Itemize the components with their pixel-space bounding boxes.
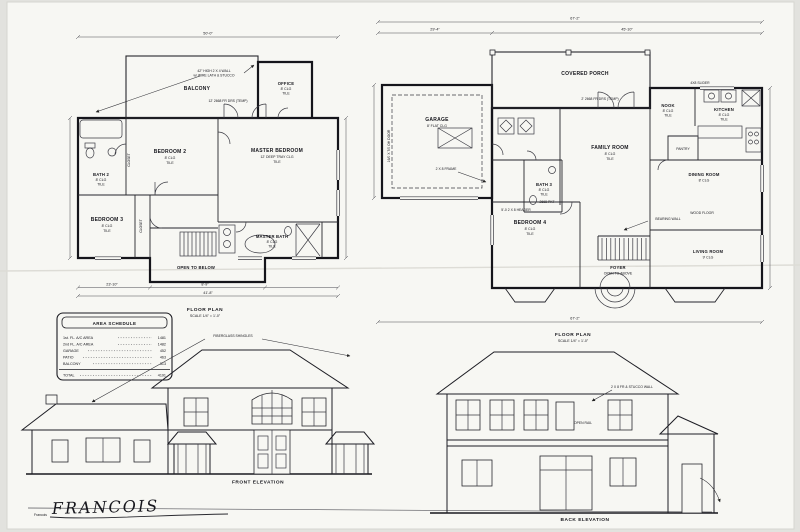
pocket-door-note: 2668 PKT: [539, 200, 554, 204]
bath2-clg: 8' CLG: [96, 178, 107, 182]
room-label-balcony: BALCONY: [184, 86, 211, 92]
room-label-covered-porch: COVERED PORCH: [561, 71, 609, 77]
dim-left-top: 50'-0": [203, 32, 213, 36]
closet-label-1: CLOSET: [139, 219, 143, 233]
master-bath-floor: TILE: [268, 245, 276, 249]
garage-clg: 8' FLAT CLG: [427, 124, 447, 128]
room-label-master-bedroom: MASTER BEDROOM: [251, 148, 303, 154]
wood-floor-note: WOOD FLOOR: [690, 211, 714, 215]
blueprint-scan: BALCONY 42" HIGH 2 X 4 WALL w/ WIRE LATH…: [0, 0, 800, 532]
total-label: TOTAL: [63, 374, 75, 378]
room-label-bedroom2: BEDROOM 2: [154, 149, 187, 155]
balcony-door-note: 12' 2668 FR DRS (TEMP): [208, 99, 247, 103]
room-label-foyer: FOYER: [610, 265, 625, 270]
header-note: 5'-0 2 X 8 HEADER: [501, 208, 531, 212]
row-label: BALCONY: [63, 362, 81, 366]
bedroom4-floor: TILE: [526, 232, 534, 236]
row-label: 2nd FL. A/C AREA: [63, 343, 94, 347]
row-value: 452: [160, 349, 166, 353]
bath3-floor: TILE: [540, 193, 548, 197]
balcony-wall-note-2: w/ WIRE LATH & STUCCO: [193, 74, 234, 78]
row-value: 463: [160, 356, 166, 360]
signature-print: Francois: [34, 513, 47, 517]
bath3-clg: 8' CLG: [539, 188, 550, 192]
first-floor-caption: FLOOR PLAN: [555, 332, 591, 338]
family-room-floor: TILE: [606, 157, 614, 161]
roof-material-note: FIBERGLASS SHINGLES: [213, 334, 253, 338]
open-rail-note: OPEN RAIL: [574, 421, 592, 425]
bath2-floor: TILE: [97, 183, 105, 187]
dim-right-top-total: 67'-2": [570, 17, 580, 21]
kitchen-clg: 8' CLG: [719, 113, 730, 117]
master-bedroom-floor: TILE: [273, 160, 281, 164]
nook-floor: TILE: [664, 114, 672, 118]
room-label-kitchen: KITCHEN: [714, 107, 734, 112]
garage-door-note: 16/0 X 7/0 OH DOOR: [387, 129, 391, 162]
dim-right-top-right: 45'-10": [621, 28, 633, 32]
stucco-wall-note: 2 X 8 FR & STUCCO WALL: [611, 385, 653, 389]
master-bedroom-clg: 12' DEEP TRAY CLG: [260, 155, 293, 159]
bedroom3-clg: 8' CLG: [102, 224, 113, 228]
dim-right-top-left: 29'-4": [430, 28, 440, 32]
frame-note: 2 X 8 FRAME: [436, 167, 457, 171]
porch-door-note: 2' 2668 FR DRS (TEMP): [581, 97, 618, 101]
bedroom2-clg: 8' CLG: [165, 156, 176, 160]
dim-left-bottom-total: 41'-8": [203, 291, 213, 295]
bearing-wall-note: BEARING WALL: [655, 217, 680, 221]
closet-label-2: CLOSET: [127, 153, 131, 167]
room-label-office: OFFICE: [278, 81, 295, 86]
row-value: 1481: [158, 336, 166, 340]
front-elevation-caption: FRONT ELEVATION: [232, 480, 284, 486]
back-elevation-caption: BACK ELEVATION: [561, 517, 610, 523]
room-label-living-room: LIVING ROOM: [693, 249, 724, 254]
row-label: PATIO: [63, 356, 74, 360]
kitchen-floor: TILE: [720, 118, 728, 122]
signature-script: FRANCOIS: [51, 496, 160, 518]
nook-clg: 8' CLG: [663, 109, 674, 113]
room-label-bedroom3: BEDROOM 3: [91, 217, 124, 223]
office-clg: 8' CLG: [281, 87, 292, 91]
row-value: 1482: [158, 343, 166, 347]
balcony-wall-note-1: 42" HIGH 2 X 4 WALL: [197, 69, 230, 73]
total-value: 4191: [158, 374, 166, 378]
room-label-pantry: PANTRY: [676, 147, 690, 151]
room-label-nook: NOOK: [661, 103, 674, 108]
area-schedule-title: AREA SCHEDULE: [93, 321, 137, 326]
dining-room-clg: 8' CLG: [699, 179, 710, 183]
room-label-garage: GARAGE: [425, 117, 449, 123]
bedroom2-floor: TILE: [166, 161, 174, 165]
room-label-open-to-below: OPEN TO BELOW: [177, 265, 215, 270]
bedroom4-clg: 8' CLG: [525, 227, 536, 231]
room-label-bath2: BATH 2: [93, 172, 109, 177]
office-floor: TILE: [282, 92, 290, 96]
row-label: 1st. FL. A/C AREA: [63, 336, 94, 340]
slider-note: 4X8 SLIDER: [690, 81, 710, 85]
bedroom3-floor: TILE: [103, 229, 111, 233]
room-label-bedroom4: BEDROOM 4: [514, 220, 547, 226]
second-floor-scale: SCALE 1/4" = 1'-0": [190, 314, 221, 318]
room-label-dining-room: DINING ROOM: [688, 172, 719, 177]
master-bath-clg: 8' CLG: [267, 240, 278, 244]
foyer-note: OPEN TO ABOVE: [604, 272, 633, 276]
room-label-bath3: BATH 3: [536, 182, 552, 187]
living-room-clg: 9' CLG: [703, 256, 714, 260]
scanned-blueprint-sheet: BALCONY 42" HIGH 2 X 4 WALL w/ WIRE LATH…: [0, 0, 800, 532]
row-label: GARAGE: [63, 349, 79, 353]
second-floor-caption: FLOOR PLAN: [187, 307, 223, 313]
first-floor-scale: SCALE 1/4" = 1'-0": [558, 339, 589, 343]
dim-left-bottom-mid: 8'-9": [201, 283, 209, 287]
dim-right-bottom-total: 67'-2": [570, 317, 580, 321]
dim-left-bottom-left: 23'-10": [106, 283, 118, 287]
room-label-master-bath: MASTER BATH: [256, 234, 288, 239]
family-room-clg: 8' CLG: [605, 152, 616, 156]
room-label-family-room: FAMILY ROOM: [591, 145, 628, 151]
